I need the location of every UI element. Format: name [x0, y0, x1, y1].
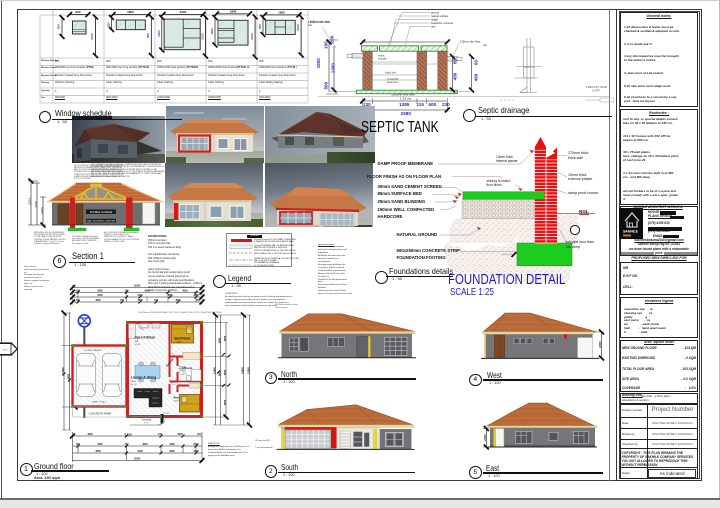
svg-text:550: 550: [196, 299, 201, 302]
svg-text:9m²: 9m²: [135, 340, 139, 343]
svg-text:13900: 13900: [247, 367, 250, 374]
svg-text:9 m²: 9 m²: [144, 422, 148, 425]
svg-text:4000: 4000: [218, 337, 221, 343]
svg-text:2400: 2400: [598, 341, 602, 348]
svg-text:3550: 3550: [224, 335, 227, 341]
svg-text:4000: 4000: [144, 289, 150, 292]
svg-text:6550: 6550: [97, 294, 103, 297]
svg-text:Open Kitchen: Open Kitchen: [135, 335, 156, 339]
svg-text:4000: 4000: [182, 289, 188, 292]
svg-text:4550: 4550: [95, 450, 101, 453]
svg-text:15200: 15200: [134, 285, 141, 288]
svg-text:Lounge & dining: Lounge & dining: [131, 376, 156, 380]
svg-text:110x75x6mm PURLINS AT MAX 120: 110x75x6mm PURLINS AT MAX 1200 CTRS ON G…: [138, 311, 222, 314]
svg-text:Bed: Bed: [174, 396, 180, 400]
svg-text:4300: 4300: [87, 433, 93, 436]
svg-text:3550: 3550: [224, 399, 227, 405]
svg-text:B/Room: B/Room: [182, 366, 193, 370]
svg-text:4000: 4000: [169, 450, 175, 453]
svg-text:34 .47: 34 .47: [131, 384, 137, 386]
svg-text:4550: 4550: [95, 299, 101, 302]
svg-text:Veranda: Veranda: [142, 418, 152, 422]
svg-text:15.18: 15.18: [174, 401, 180, 403]
svg-text:4000: 4000: [177, 433, 183, 436]
svg-text:2400: 2400: [483, 434, 487, 441]
svg-text:4 x 14: 4 x 14: [163, 413, 169, 415]
svg-text:DOUBLE GARAGE: DOUBLE GARAGE: [84, 349, 102, 352]
svg-text:2950: 2950: [224, 369, 227, 375]
svg-text:150: 150: [197, 433, 202, 436]
svg-text:15200: 15200: [134, 458, 141, 461]
svg-text:CONCRETE RAMP: CONCRETE RAMP: [89, 412, 112, 416]
svg-text:4500: 4500: [97, 443, 103, 446]
svg-text:4300: 4300: [169, 443, 175, 446]
svg-text:5200: 5200: [97, 289, 103, 292]
svg-text:Bed Room: Bed Room: [175, 336, 191, 340]
svg-text:6000: 6000: [67, 373, 70, 379]
svg-text:RAMP 1:8 FALL: RAMP 1:8 FALL: [92, 400, 107, 403]
svg-text:13900: 13900: [62, 367, 65, 374]
svg-text:14 .49: 14 .49: [135, 344, 141, 346]
svg-text:16.07: 16.07: [177, 342, 183, 344]
svg-text:25m²: 25m²: [131, 380, 136, 383]
svg-text:14200: 14200: [241, 367, 244, 374]
svg-text:SAKHILE: SAKHILE: [623, 229, 639, 233]
svg-text:14200: 14200: [213, 367, 216, 374]
svg-text:3650: 3650: [142, 443, 148, 446]
svg-text:1500: 1500: [137, 450, 143, 453]
svg-text:4,230: 4,230: [124, 432, 132, 436]
